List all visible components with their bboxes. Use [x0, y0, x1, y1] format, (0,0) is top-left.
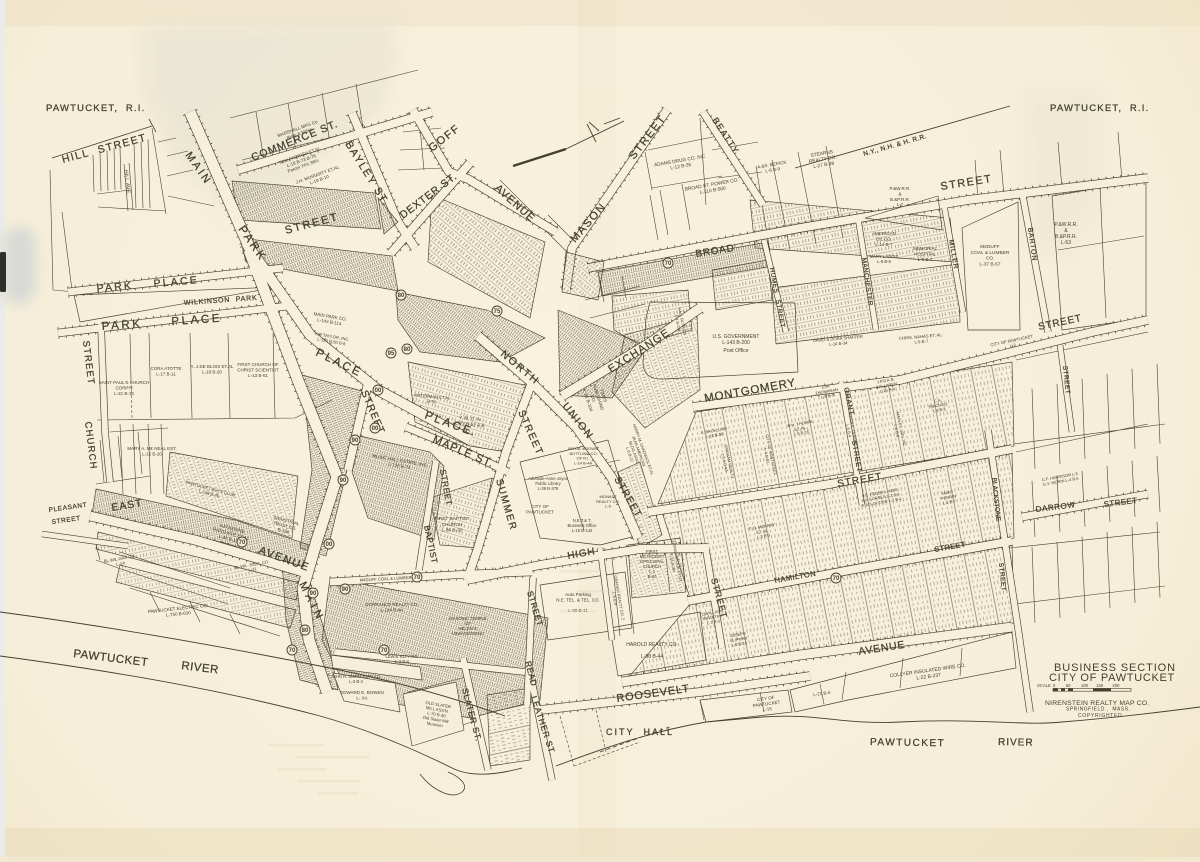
- svg-text:CITY HALL: CITY HALL: [606, 727, 674, 737]
- svg-text:B-52: B-52: [427, 399, 437, 405]
- svg-text:HOSPITAL: HOSPITAL: [914, 251, 936, 256]
- svg-text:90: 90: [352, 438, 359, 444]
- svg-text:SCALE 0 50 10: SCALE 0 50 100 150 200: [1037, 683, 1120, 688]
- svg-text:00: 00: [375, 388, 382, 394]
- svg-text:L-14 B-7: L-14 B-7: [875, 242, 893, 247]
- svg-text:90: 90: [310, 591, 317, 597]
- svg-text:Post Office: Post Office: [723, 348, 748, 354]
- svg-text:70: 70: [239, 540, 246, 546]
- svg-text:COPYRIGHTED: COPYRIGHTED: [1078, 713, 1122, 719]
- svg-text:L-21 B-16: L-21 B-16: [114, 391, 134, 396]
- svg-text:AMERICAN: AMERICAN: [872, 231, 896, 236]
- svg-text:L-14 B-4A: L-14 B-4A: [574, 460, 592, 465]
- svg-text:L-3 B-4: L-3 B-4: [349, 679, 363, 684]
- svg-text:L-37 B-57: L-37 B-57: [979, 261, 1000, 267]
- svg-text:70: 70: [833, 576, 840, 582]
- svg-text:L-2 B-4: L-2 B-4: [395, 659, 409, 664]
- svg-text:L-90 B-44: L-90 B-44: [641, 654, 663, 660]
- svg-text:PAWTUCKET, R.I.: PAWTUCKET, R.I.: [46, 103, 145, 114]
- svg-text:L-7: L-7: [897, 202, 904, 207]
- svg-text:N.E. TEL. & TEL. CO.: N.E. TEL. & TEL. CO.: [556, 597, 600, 602]
- svg-text:80: 80: [398, 293, 405, 299]
- svg-text:SPRINGFIELD , MASS.: SPRINGFIELD , MASS.: [1066, 707, 1130, 713]
- svg-text:B.&P.R.R.: B.&P.R.R.: [890, 197, 910, 202]
- svg-text:L-5: L-5: [605, 504, 612, 509]
- svg-text:70: 70: [381, 648, 388, 654]
- svg-text:00: 00: [372, 426, 379, 432]
- svg-text:LEWANDOWSKI: LEWANDOWSKI: [452, 631, 484, 636]
- svg-text:70: 70: [665, 261, 672, 267]
- svg-text:CITY OF: CITY OF: [531, 504, 549, 509]
- svg-text:L-143 B-200: L-143 B-200: [722, 340, 750, 346]
- svg-text:CORP'N: CORP'N: [115, 385, 132, 390]
- svg-text:&: &: [898, 191, 901, 196]
- svg-text:70: 70: [414, 575, 421, 581]
- svg-text:90: 90: [342, 587, 349, 593]
- svg-text:PAWTUCKET: PAWTUCKET: [870, 737, 945, 749]
- svg-text:M¢DUFF: M¢DUFF: [980, 244, 1000, 250]
- svg-text:FIRST BAPTIST: FIRST BAPTIST: [434, 516, 469, 522]
- svg-text:PAWTUCKET: PAWTUCKET: [526, 509, 554, 514]
- svg-text:80: 80: [302, 628, 309, 634]
- svg-text:L-18 B-20: L-18 B-20: [202, 369, 222, 374]
- svg-text:DORRANCE REALTY CO.: DORRANCE REALTY CO.: [365, 602, 418, 607]
- svg-text:00: 00: [326, 542, 333, 548]
- svg-text:Auto Parking: Auto Parking: [565, 592, 591, 597]
- svg-text:EDWARD E. BOWEN: EDWARD E. BOWEN: [340, 690, 384, 695]
- svg-text:COAL & LUMBER: COAL & LUMBER: [971, 250, 1010, 256]
- svg-text:A. J.DE BLOIS ET.AL: A. J.DE BLOIS ET.AL: [190, 364, 234, 369]
- svg-text:L- XA: L- XA: [356, 695, 367, 700]
- svg-text:70: 70: [289, 648, 296, 654]
- svg-text:L-39 B-378: L-39 B-378: [538, 486, 559, 491]
- svg-text:B-20: B-20: [648, 574, 658, 579]
- svg-text:L-5 B-9: L-5 B-9: [877, 259, 891, 264]
- svg-text:CO.: CO.: [986, 256, 995, 262]
- svg-text:L-15 B-142: L-15 B-142: [572, 528, 593, 533]
- svg-text:80: 80: [404, 347, 411, 353]
- svg-text:L-144 B-4A: L-144 B-4A: [381, 607, 404, 612]
- svg-text:SAINT PAUL'S CHURCH: SAINT PAUL'S CHURCH: [99, 380, 149, 385]
- svg-text:L-13 B-61: L-13 B-61: [248, 373, 268, 378]
- svg-text:CHURCH: CHURCH: [442, 522, 463, 528]
- svg-text:MARY A. M¢ NEAL EST.: MARY A. M¢ NEAL EST.: [127, 446, 176, 451]
- svg-text:95: 95: [388, 351, 395, 357]
- svg-text:FIRST CHURCH OF: FIRST CHURCH OF: [237, 362, 278, 367]
- svg-text:P.&W.R.R.: P.&W.R.R.: [890, 186, 911, 191]
- svg-text:L-17 B-11: L-17 B-11: [156, 371, 176, 376]
- svg-text:75: 75: [494, 309, 501, 315]
- svg-text:HAROLD REALTY CO.: HAROLD REALTY CO.: [626, 642, 678, 648]
- svg-text:L-15 B-20: L-15 B-20: [142, 451, 162, 456]
- svg-text:CHRIST SCIENTIST: CHRIST SCIENTIST: [237, 367, 279, 372]
- svg-text:L-53: L-53: [1061, 240, 1071, 246]
- svg-text:PAWTUCKET, R.I.: PAWTUCKET, R.I.: [1050, 103, 1149, 114]
- svg-text:CORA ATOTTE: CORA ATOTTE: [150, 366, 181, 371]
- svg-text:L-36 B-30: L-36 B-30: [441, 528, 462, 534]
- svg-text:RIVER: RIVER: [998, 737, 1034, 749]
- svg-text:OIL CO.: OIL CO.: [876, 236, 892, 241]
- svg-text:MEMORIAL: MEMORIAL: [913, 246, 938, 251]
- svg-text:90: 90: [340, 478, 347, 484]
- svg-text:L-5 B-7: L-5 B-7: [918, 257, 933, 262]
